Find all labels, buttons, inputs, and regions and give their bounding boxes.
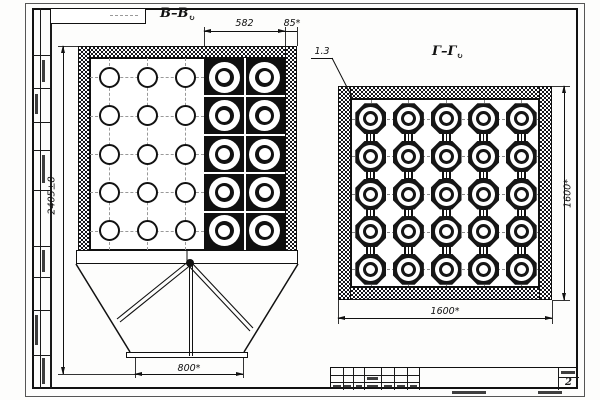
plain-tube [137, 220, 158, 241]
link-plate [404, 171, 413, 180]
title-text-smudge [384, 385, 392, 388]
plain-tube [99, 182, 120, 203]
outlet-flange [126, 352, 248, 358]
link-plate [479, 209, 488, 218]
arrowhead-icon [562, 85, 566, 93]
tube-element-bore [442, 152, 451, 161]
casing-left-band [338, 86, 351, 300]
cell-separator [204, 211, 285, 213]
tube-element-bore [479, 265, 488, 274]
tube-element-bore [442, 227, 451, 236]
tube-element-bore [479, 190, 488, 199]
arrowhead-icon [61, 45, 65, 53]
link-plate [442, 133, 451, 142]
cell-separator [204, 172, 285, 174]
plain-tube [99, 220, 120, 241]
dim-line-outlet-width [135, 374, 243, 375]
tube-element-bore [404, 227, 413, 236]
dim-line-overall-height [63, 46, 64, 374]
plain-tube [137, 144, 158, 165]
tube-field-ring [204, 58, 285, 250]
title-text-smudge [367, 385, 378, 388]
footer-text-smudge [452, 391, 486, 394]
link-plate [479, 133, 488, 142]
tube-element-bore [479, 152, 488, 161]
link-plate [442, 246, 451, 255]
tube-element-bore [517, 152, 526, 161]
plain-tube [175, 182, 196, 203]
plain-tube [137, 182, 158, 203]
link-plate [404, 209, 413, 218]
ext-line [58, 374, 137, 375]
link-plate [517, 209, 526, 218]
tube-element-bore [404, 190, 413, 199]
title-text-smudge [344, 385, 351, 388]
title-text-smudge [561, 371, 575, 374]
title-text-smudge [356, 385, 362, 388]
link-plate [366, 171, 375, 180]
title-text-smudge [333, 385, 341, 388]
tube-grid [351, 99, 539, 287]
section-label-gg: Г–Г↻ [432, 44, 463, 61]
link-plate [404, 133, 413, 142]
ring-tube-center [259, 148, 271, 160]
link-plate [366, 246, 375, 255]
casing-bottom-band [338, 287, 552, 300]
arrowhead-icon [562, 293, 566, 301]
link-plate [479, 246, 488, 255]
section-label-bb: В–В↻ [160, 6, 195, 23]
margin-text-smudge [42, 250, 45, 272]
dim-line-grid-width [338, 318, 552, 319]
plain-tube [99, 105, 120, 126]
arrowhead-icon [203, 29, 211, 33]
plain-tube [137, 67, 158, 88]
link-plate [479, 171, 488, 180]
dim-text-grid-width: 1600* [338, 306, 552, 317]
casing-top-band [338, 86, 552, 99]
title-text-smudge [410, 385, 417, 388]
margin-text-smudge [42, 358, 45, 384]
ring-tube-center [218, 110, 230, 122]
sheet-number: 2 [558, 377, 579, 390]
plain-tube [175, 220, 196, 241]
link-plate [366, 209, 375, 218]
rotated-section-icon: ↻ [188, 13, 195, 23]
designation-dashes [110, 15, 138, 16]
leader-note: 1.3 [311, 46, 333, 59]
link-plate [517, 133, 526, 142]
link-plate [404, 246, 413, 255]
rotated-section-icon: ↻ [456, 51, 463, 61]
tube-element-bore [442, 265, 451, 274]
link-plate [442, 171, 451, 180]
plain-tube [175, 67, 196, 88]
tube-field-plain [90, 58, 204, 250]
tube-element-bore [366, 265, 375, 274]
tube-element-bore [404, 265, 413, 274]
dim-text-overall-height: 2405±8 [47, 172, 58, 220]
plain-tube [175, 105, 196, 126]
margin-text-smudge [42, 155, 45, 183]
title-block: 2 [330, 367, 578, 389]
dim-line-edge-offset [285, 31, 297, 32]
plain-tube [137, 105, 158, 126]
casing-left-band [78, 46, 90, 252]
margin-text-smudge [35, 315, 38, 345]
drawing-sheet: В–В↻ 582 85* 2405±8 800* Г–Г↻ 1.3 [0, 0, 600, 400]
ring-tube-center [218, 225, 230, 237]
tube-element-bore [517, 265, 526, 274]
title-text-smudge [397, 385, 405, 388]
arrowhead-icon [61, 367, 65, 375]
tube-element-bore [442, 190, 451, 199]
casing-top-band [78, 46, 297, 58]
link-plate [517, 171, 526, 180]
title-text-smudge [367, 377, 378, 380]
cell-separator [204, 134, 285, 136]
link-plate [366, 133, 375, 142]
plain-tube [99, 144, 120, 165]
tube-element-bore [517, 227, 526, 236]
margin-text-smudge [42, 60, 45, 82]
plain-tube [99, 67, 120, 88]
bottom-plate [76, 250, 298, 264]
dim-text-outlet-width: 800* [135, 363, 243, 374]
footer-text-smudge [538, 391, 562, 394]
cell-separator [204, 95, 285, 97]
ring-tube-center [259, 225, 271, 237]
tube-element-bore [517, 114, 526, 123]
ext-line [297, 27, 298, 46]
section-label-bb-text: В–В [160, 6, 188, 21]
dim-text-edge-offset: 85* [278, 18, 306, 29]
ext-line [552, 300, 553, 324]
tube-element-bore [442, 114, 451, 123]
tube-element-bore [404, 152, 413, 161]
ring-tube-center [259, 71, 271, 83]
margin-text-smudge [35, 94, 38, 114]
tube-element-bore [517, 190, 526, 199]
designation-box [50, 8, 146, 24]
tube-element-bore [366, 190, 375, 199]
cell-separator [244, 58, 246, 250]
casing-right-band [539, 86, 552, 300]
ring-tube-center [259, 110, 271, 122]
casing-right-band [285, 46, 297, 252]
section-label-gg-text: Г–Г [432, 44, 456, 59]
plain-tube [175, 144, 196, 165]
link-plate [517, 246, 526, 255]
dim-text-grid-height: 1600* [563, 174, 574, 214]
dim-line-bundle-width [204, 31, 285, 32]
link-plate [442, 209, 451, 218]
dim-text-bundle-width: 582 [204, 18, 285, 29]
